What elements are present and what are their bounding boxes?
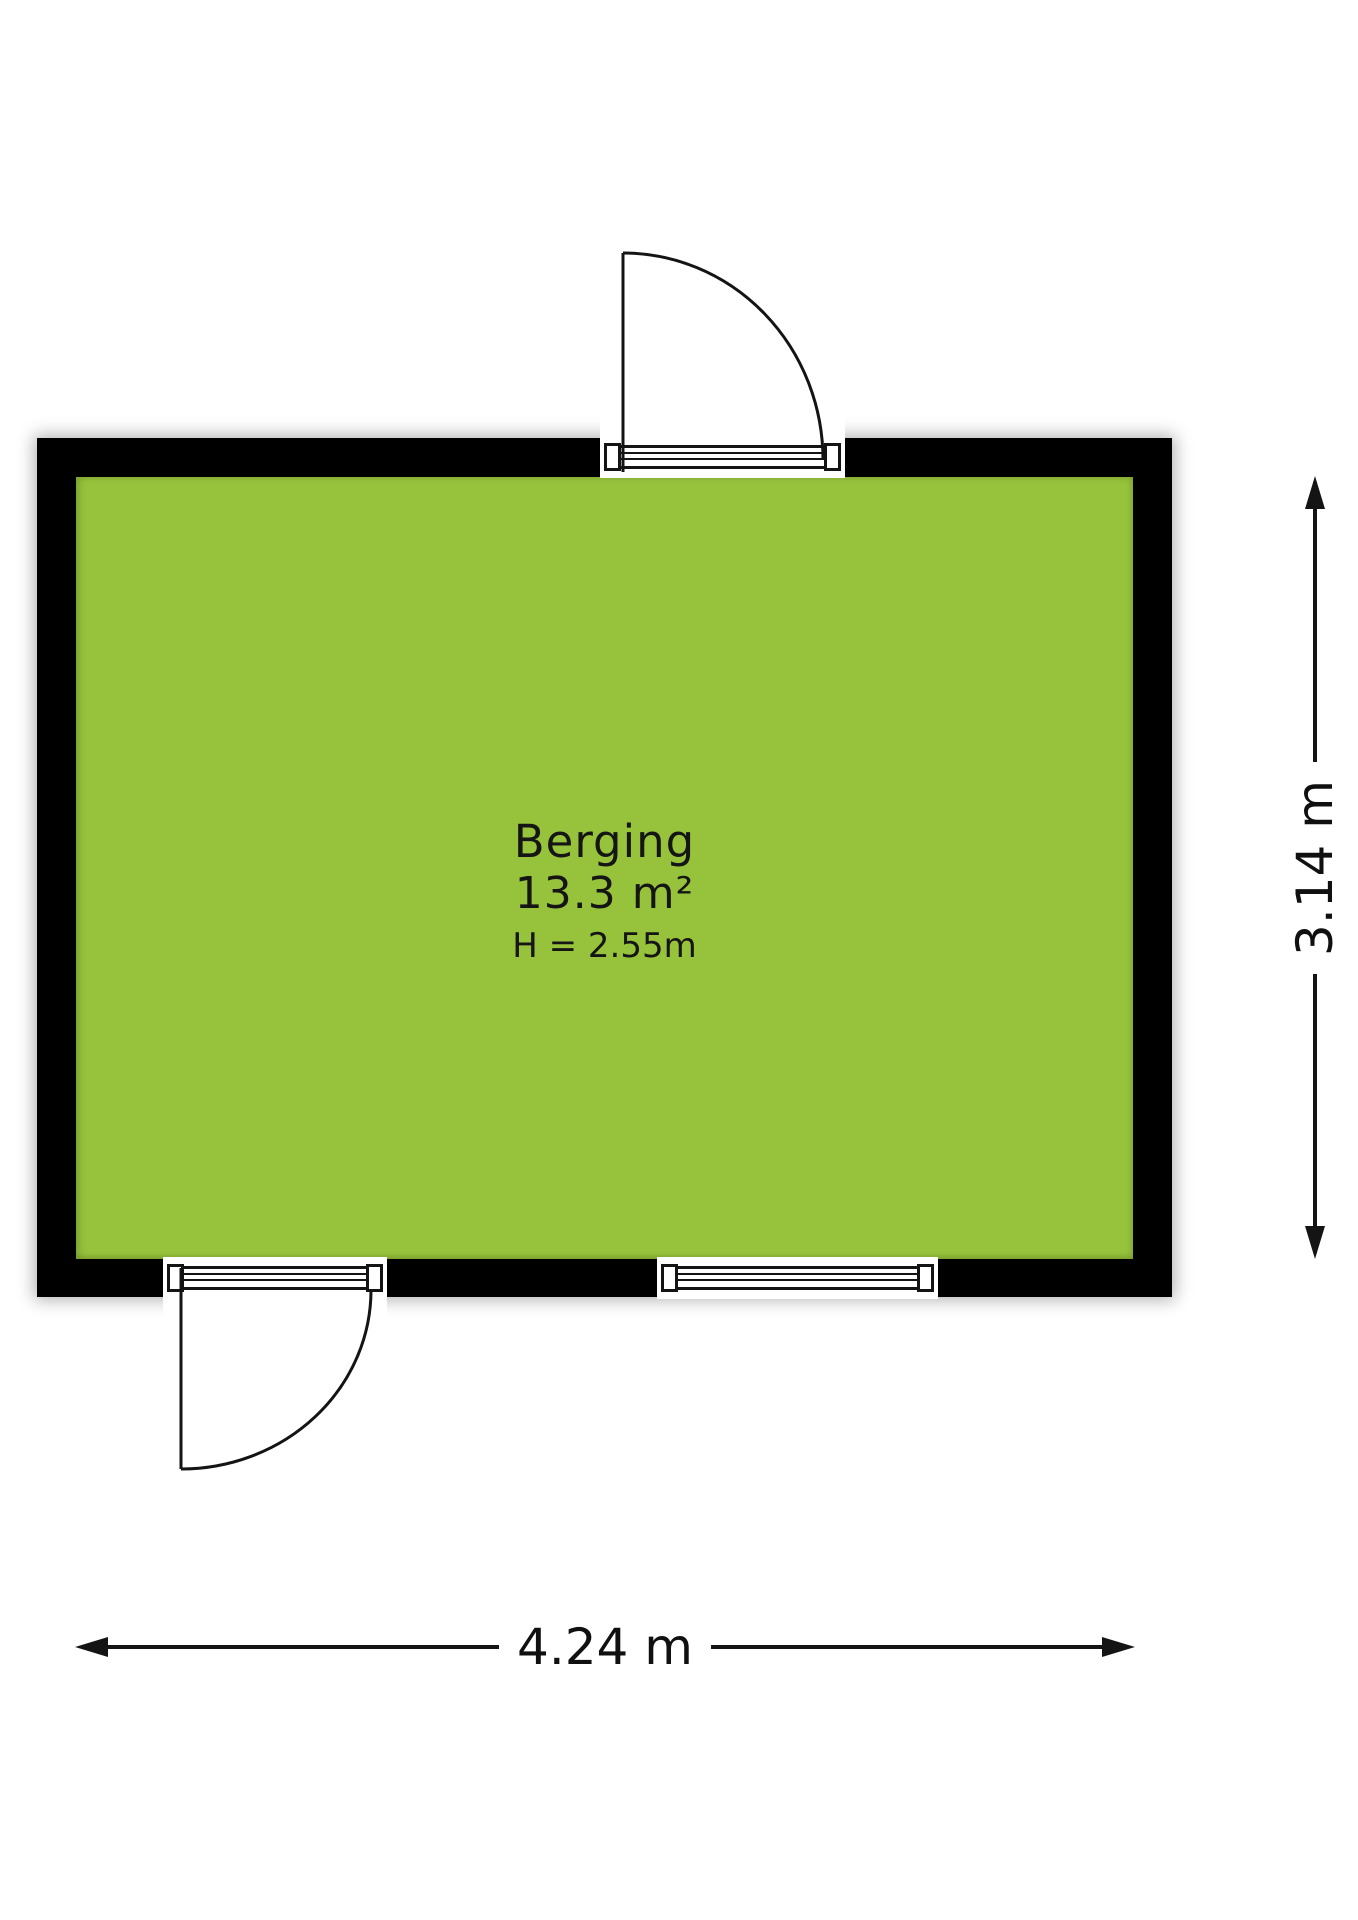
bottom-door-frame-lines	[168, 1273, 382, 1281]
room-name: Berging	[76, 816, 1133, 868]
bottom-door-post-right	[366, 1264, 383, 1292]
top-door-post-right	[824, 443, 841, 471]
room-ceiling-height: H = 2.55m	[76, 926, 1133, 966]
bottom-window-frame-lines	[662, 1273, 933, 1281]
height-dimension-label: 3.14 m	[1286, 762, 1344, 974]
bottom-door-opening	[163, 1257, 387, 1299]
bottom-window	[657, 1257, 938, 1299]
width-dimension-arrowhead-left	[75, 1637, 108, 1657]
width-dimension-arrowhead-right	[1102, 1637, 1135, 1657]
bottom-window-post-left	[661, 1264, 678, 1292]
room-label: Berging 13.3 m² H = 2.55m	[76, 816, 1133, 966]
height-dimension-arrowhead-bottom	[1305, 1226, 1325, 1259]
bottom-window-post-right	[917, 1264, 934, 1292]
bottom-door-reveal	[163, 1295, 387, 1327]
top-door-frame-lines	[605, 452, 840, 460]
bottom-door-frame	[168, 1266, 382, 1290]
width-dimension-label: 4.24 m	[499, 1618, 711, 1676]
room-area: 13.3 m²	[76, 868, 1133, 920]
bottom-window-frame	[662, 1266, 933, 1290]
top-door-post-left	[604, 443, 621, 471]
top-door-frame	[605, 445, 840, 469]
top-door-opening	[600, 436, 845, 478]
bottom-door-post-left	[167, 1264, 184, 1292]
floorplan-canvas: Berging 13.3 m² H = 2.55m 4.24 m 3.14 m	[0, 0, 1358, 1920]
height-dimension-arrowhead-top	[1305, 476, 1325, 509]
